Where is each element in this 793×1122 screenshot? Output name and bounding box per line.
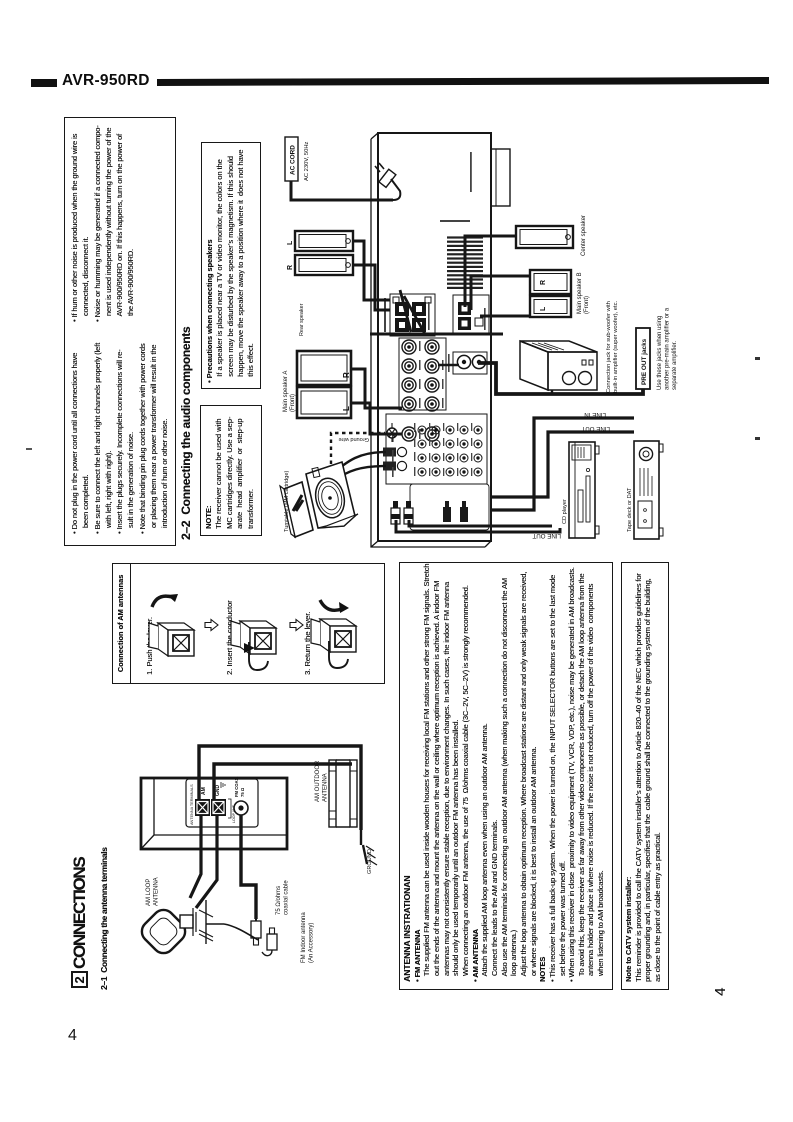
svg-text:CD player: CD player (562, 499, 568, 524)
svg-text:L: L (287, 240, 294, 245)
svg-text:AM LOOP: AM LOOP (146, 879, 152, 906)
svg-text:ANTENNA: ANTENNA (323, 773, 329, 802)
svg-text:FM COAX.: FM COAX. (234, 777, 239, 797)
svg-text:AM: AM (201, 787, 207, 795)
svg-text:(Front): (Front) (584, 296, 590, 314)
svg-text:another pre-main amplifier or: another pre-main amplifier or a (665, 307, 671, 390)
svg-text:AC 230V, 50Hz: AC 230V, 50Hz (304, 141, 310, 181)
svg-text:LINE OUT: LINE OUT (581, 425, 610, 432)
svg-text:FM Indoor antenna: FM Indoor antenna (301, 912, 307, 963)
svg-text:Center speaker: Center speaker (581, 215, 587, 256)
svg-text:Ground wire: Ground wire (339, 436, 369, 442)
svg-text:Turntable (MM cartridge): Turntable (MM cartridge) (284, 471, 290, 532)
svg-text:ANTENNA: ANTENNA (154, 877, 160, 906)
svg-text:75 Ω: 75 Ω (240, 787, 245, 797)
svg-text:GND: GND (215, 785, 221, 797)
svg-text:(Front): (Front) (290, 394, 296, 412)
svg-text:Main speaker A: Main speaker A (283, 371, 289, 412)
svg-text:built-in amplifier (super woof: built-in amplifier (super woofer), etc. (613, 300, 619, 393)
svg-text:L: L (540, 306, 547, 311)
svg-text:PRE OUT jacks: PRE OUT jacks (641, 338, 648, 385)
svg-text:Use these jacks when using: Use these jacks when using (657, 316, 663, 390)
svg-text:GROUND: GROUND (367, 849, 373, 874)
svg-text:ANTENNA TERMINALS: ANTENNA TERMINALS (190, 784, 194, 825)
svg-text:Main speaker B: Main speaker B (577, 272, 583, 314)
svg-text:R: R (342, 372, 351, 378)
svg-text:75 Ω/ohms: 75 Ω/ohms (276, 886, 282, 915)
svg-text:coaxial cable: coaxial cable (284, 880, 290, 915)
svg-text:LINE IN: LINE IN (584, 411, 606, 418)
svg-text:AC CORD: AC CORD (290, 145, 297, 175)
svg-text:Connection jack for sub-woofer: Connection jack for sub-woofer with (606, 301, 612, 393)
svg-text:R: R (540, 280, 547, 285)
svg-text:(An Accessory): (An Accessory) (309, 923, 315, 963)
svg-text:Rear speaker: Rear speaker (299, 303, 305, 336)
svg-text:R: R (287, 265, 294, 270)
svg-text:L: L (342, 406, 351, 411)
svg-text:LINE OUT: LINE OUT (532, 532, 561, 539)
svg-text:Tape deck or DAT: Tape deck or DAT (627, 487, 633, 532)
svg-text:AM OUTDOOR: AM OUTDOOR (315, 760, 321, 802)
svg-text:separate amplifier.: separate amplifier. (672, 341, 678, 390)
